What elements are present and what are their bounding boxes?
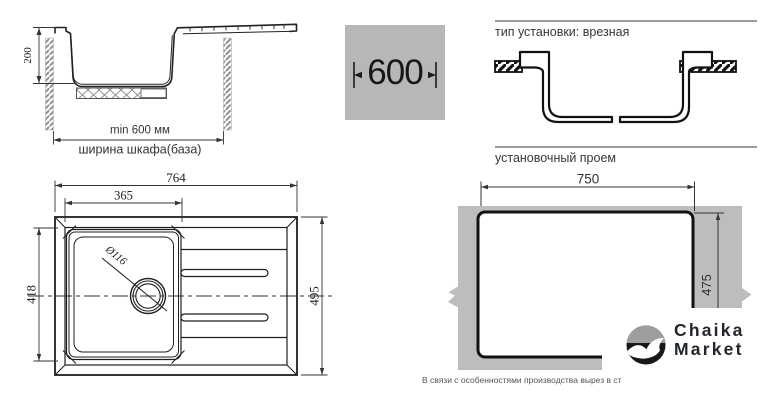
drain-hole [102,258,167,314]
drainboard-rib [181,314,268,321]
dim-bowl-depth: 418 [25,285,39,304]
countertop-left [495,61,522,72]
cross-section-drawing [490,48,760,128]
dim-height-label: 200 [22,47,34,64]
cabinet-width-label: ширина шкафа(база) [79,143,202,157]
dim-bowl-width: 365 [114,189,133,203]
divider-top [495,20,757,22]
divider-mid [495,146,757,148]
sink-profile [55,24,297,86]
install-type-heading: тип установки: врезная [495,25,629,39]
dim-overall-width: 764 [166,170,186,185]
sink-wall-right [620,52,712,122]
drain-diameter-label: Ø116 [102,243,129,268]
brand-line1: Chaika [674,321,745,340]
dim-cutout-width: 750 [577,172,600,187]
cabinet-wall-right [224,38,232,130]
cabinet-size-badge: 600 [345,25,445,120]
badge-600-value: 600 [345,25,445,120]
dim-min-width-label: min 600 мм [110,125,170,137]
dim-cutout-depth: 475 [699,274,714,296]
cabinet-wall-left [46,38,54,130]
production-note: В связи с особенностями производства выр… [422,375,621,385]
side-view-drawing: 200 min 600 мм ширина шкафа(база) [0,0,340,160]
brand-logo: Chaika Market [602,308,776,406]
brand-line2: Market [674,340,745,359]
plan-view-drawing: Ø116 764 365 418 495 [10,158,345,403]
brand-name: Chaika Market [674,321,745,359]
sink-wall-left [520,52,612,122]
sink-spec-sheet: 200 min 600 мм ширина шкафа(база) 600 ти… [0,0,776,406]
dim-overall-depth: 495 [307,286,322,306]
cutout-heading: установочный проем [495,151,616,165]
drainboard-rib [181,270,268,277]
under-bowl-plate [141,89,166,98]
